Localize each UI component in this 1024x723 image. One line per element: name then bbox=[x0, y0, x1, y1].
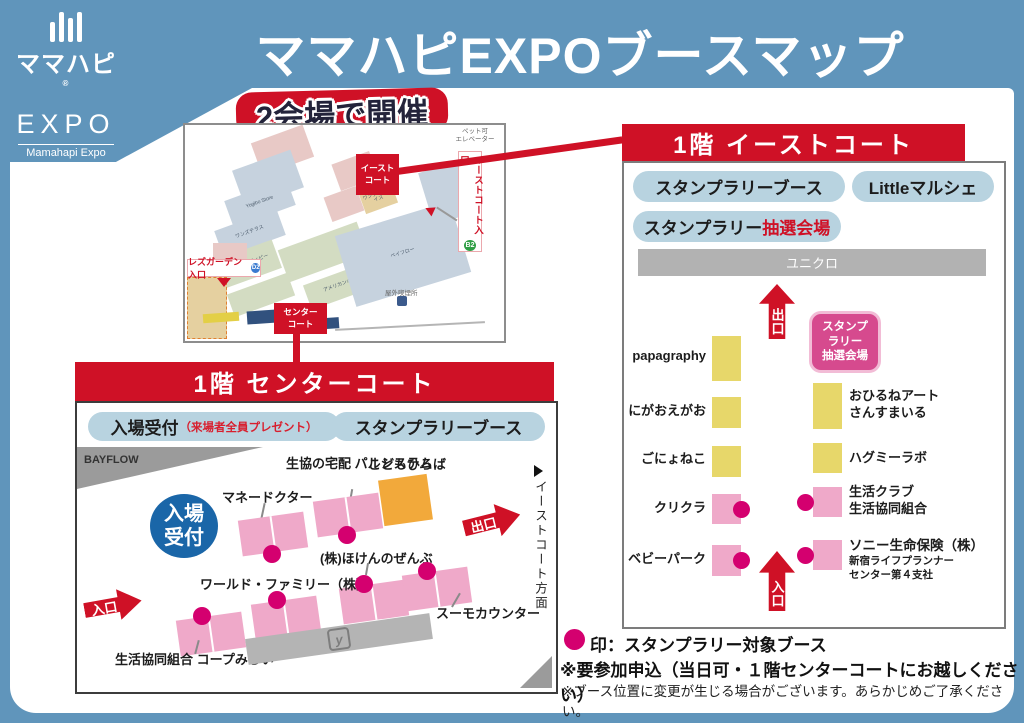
booth-label: ワールド・ファミリー（株） bbox=[200, 577, 369, 594]
escalator-icon: y bbox=[327, 627, 352, 652]
east-exit-label: 出口 bbox=[768, 308, 787, 336]
rose-garden-arrow-icon bbox=[217, 278, 231, 287]
booth-square bbox=[712, 397, 741, 428]
reception-pill-note: （来場者全員プレゼント） bbox=[180, 419, 318, 435]
east-pill-little-marche: Littleマルシェ bbox=[852, 171, 994, 202]
legend-note2: ※ブース位置に変更が生じる場合がございます。あらかじめご了承ください。 bbox=[562, 680, 1024, 720]
stamp-dot-icon bbox=[263, 545, 281, 563]
booth-square bbox=[813, 383, 842, 429]
booth-label: マネードクター bbox=[222, 490, 312, 507]
east-court-entrance: イーストコート入口 B2 bbox=[458, 151, 482, 252]
stamp-dot-icon bbox=[268, 591, 286, 609]
store-label: ワンズテラス bbox=[235, 225, 265, 240]
b2-badge: B2 bbox=[464, 240, 476, 251]
map-corridor-line bbox=[335, 321, 485, 330]
rose-garden-entrance: レズガーデン入口 D2 bbox=[187, 259, 261, 277]
stamp-dot-icon bbox=[193, 607, 211, 625]
center-pill-stamp-label: スタンプラリーブース bbox=[355, 414, 523, 439]
booth-label: おひるねアート さんすまいる bbox=[849, 388, 939, 422]
stamp-dot-icon bbox=[418, 562, 436, 580]
east-pill-stamp-label: スタンプラリーブース bbox=[655, 174, 823, 199]
store-label: ベイフロー bbox=[390, 248, 416, 261]
d2-badge: D2 bbox=[251, 263, 260, 273]
booth-square bbox=[813, 443, 842, 473]
east-court-entrance-label: イーストコート入口 bbox=[456, 155, 484, 238]
east-pill-raffle-label-red: 抽選会場 bbox=[762, 214, 830, 239]
booth-label: ソニー生命保険（株） bbox=[849, 537, 984, 555]
mall-floor-map: Yogibo Store ワンズテラス チャオパニックティピー アメリカンホリッ… bbox=[183, 123, 506, 343]
booth-label: 生協の宅配 パルシステム bbox=[286, 456, 432, 473]
east-court-header: 1階 イーストコート bbox=[622, 124, 965, 161]
map-block bbox=[203, 312, 240, 323]
booth-square bbox=[712, 336, 741, 381]
legend-stamp-note: 印：スタンプラリー対象ブース bbox=[590, 631, 827, 656]
uniqlo-label: ユニクロ bbox=[786, 253, 838, 272]
mamahapi-logo: ママハピ® EXPO Mamahapi Expo bbox=[14, 12, 118, 159]
east-pill-raffle: スタンプラリー抽選会場 bbox=[633, 211, 841, 242]
page-title: ママハピEXPOブースマップ bbox=[180, 16, 980, 88]
map-east-court-box: イースト コート bbox=[356, 154, 399, 195]
center-pill-reception: 入場受付 （来場者全員プレゼント） bbox=[88, 412, 340, 441]
booth-label: クリクラ bbox=[600, 500, 706, 517]
booth-sublabel: 新宿ライフプランナー センター第４支社 bbox=[849, 555, 954, 582]
kids-area-square bbox=[378, 474, 433, 526]
store-label: Yogibo Store bbox=[246, 196, 275, 211]
booth-square bbox=[813, 487, 842, 517]
booth-square bbox=[813, 540, 842, 570]
center-connector-line bbox=[293, 331, 300, 363]
direction-triangle-icon bbox=[534, 465, 543, 477]
logo-reg-mark: ® bbox=[63, 79, 70, 88]
logo-name-en: EXPO bbox=[14, 109, 118, 140]
booth-label: 生活クラブ 生活協同組合 bbox=[849, 484, 927, 518]
center-court-header: 1階 センターコート bbox=[75, 362, 554, 401]
east-entrance-label: 入口 bbox=[768, 580, 787, 608]
reception-pill-main: 入場受付 bbox=[111, 414, 179, 439]
booth-square bbox=[712, 446, 741, 477]
stamp-dot-icon bbox=[797, 547, 814, 564]
logo-divider bbox=[18, 144, 114, 145]
stamp-dot-icon bbox=[338, 526, 356, 544]
logo-name-jp: ママハピ® bbox=[14, 44, 118, 107]
booth-label: (株)ほけんのぜんぶ bbox=[320, 551, 433, 568]
booth-label: にがおえがお bbox=[600, 403, 706, 420]
booth-label: ハグミーラボ bbox=[849, 450, 927, 467]
mamahapi-logo-icon bbox=[14, 12, 118, 44]
center-court-header-label: 1階 センターコート bbox=[193, 364, 435, 399]
pet-elevator-note: ペット可 エレベーター bbox=[447, 128, 503, 144]
booth-label: ベビーパーク bbox=[600, 551, 706, 568]
east-pill-raffle-label-black: スタンプラリー bbox=[644, 214, 763, 239]
stamp-dot-icon bbox=[355, 575, 373, 593]
east-pill-stamp-booth: スタンプラリーブース bbox=[633, 171, 845, 202]
uniqlo-bar: ユニクロ bbox=[638, 249, 986, 276]
booth-label: ごにょねこ bbox=[600, 451, 706, 468]
east-pill-little-label: Littleマルシェ bbox=[869, 174, 978, 199]
center-pill-stamp-booth: スタンプラリーブース bbox=[332, 412, 545, 441]
raffle-venue-badge: スタンプ ラリー 抽選会場 bbox=[809, 311, 881, 373]
smoking-area-icon bbox=[397, 296, 407, 306]
east-court-header-label: 1階 イーストコート bbox=[673, 125, 914, 160]
stamp-dot-icon bbox=[733, 501, 750, 518]
bayflow-label: BAYFLOW bbox=[84, 454, 139, 466]
booth-label: papagraphy bbox=[600, 348, 706, 365]
booth-label: スーモカウンター bbox=[436, 606, 540, 623]
legend-stamp-dot-icon bbox=[564, 629, 585, 650]
logo-subtitle: Mamahapi Expo bbox=[14, 147, 118, 159]
stamp-dot-icon bbox=[797, 494, 814, 511]
reception-circle: 入場 受付 bbox=[150, 494, 218, 558]
direction-label: イーストコート方面 bbox=[531, 480, 550, 611]
stamp-dot-icon bbox=[733, 552, 750, 569]
map-center-court-box: センター コート bbox=[274, 303, 327, 334]
